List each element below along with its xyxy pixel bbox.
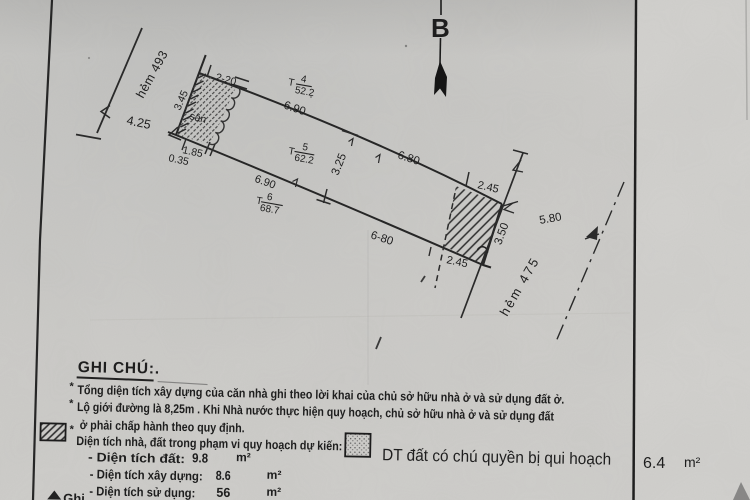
svg-text:GHI CHÚ:.: GHI CHÚ:.	[78, 358, 160, 378]
svg-text:56: 56	[216, 485, 230, 500]
svg-text:m²: m²	[684, 454, 701, 470]
svg-text:- Diện tích đất:: - Diện tích đất:	[88, 450, 185, 466]
svg-text:B: B	[431, 13, 450, 43]
svg-text:6.4: 6.4	[643, 455, 665, 472]
svg-text:Ghi: Ghi	[63, 491, 85, 500]
svg-text:9.8: 9.8	[192, 450, 208, 465]
svg-text:- Diện tích xây dựng:: - Diện tích xây dựng:	[90, 467, 203, 483]
svg-text:m²: m²	[236, 450, 251, 464]
svg-text:8.6: 8.6	[216, 468, 231, 483]
svg-text:m²: m²	[267, 468, 282, 482]
svg-text:m²: m²	[266, 485, 281, 499]
svg-text:- Diện tích sử dụng:: - Diện tích sử dụng:	[89, 484, 195, 500]
